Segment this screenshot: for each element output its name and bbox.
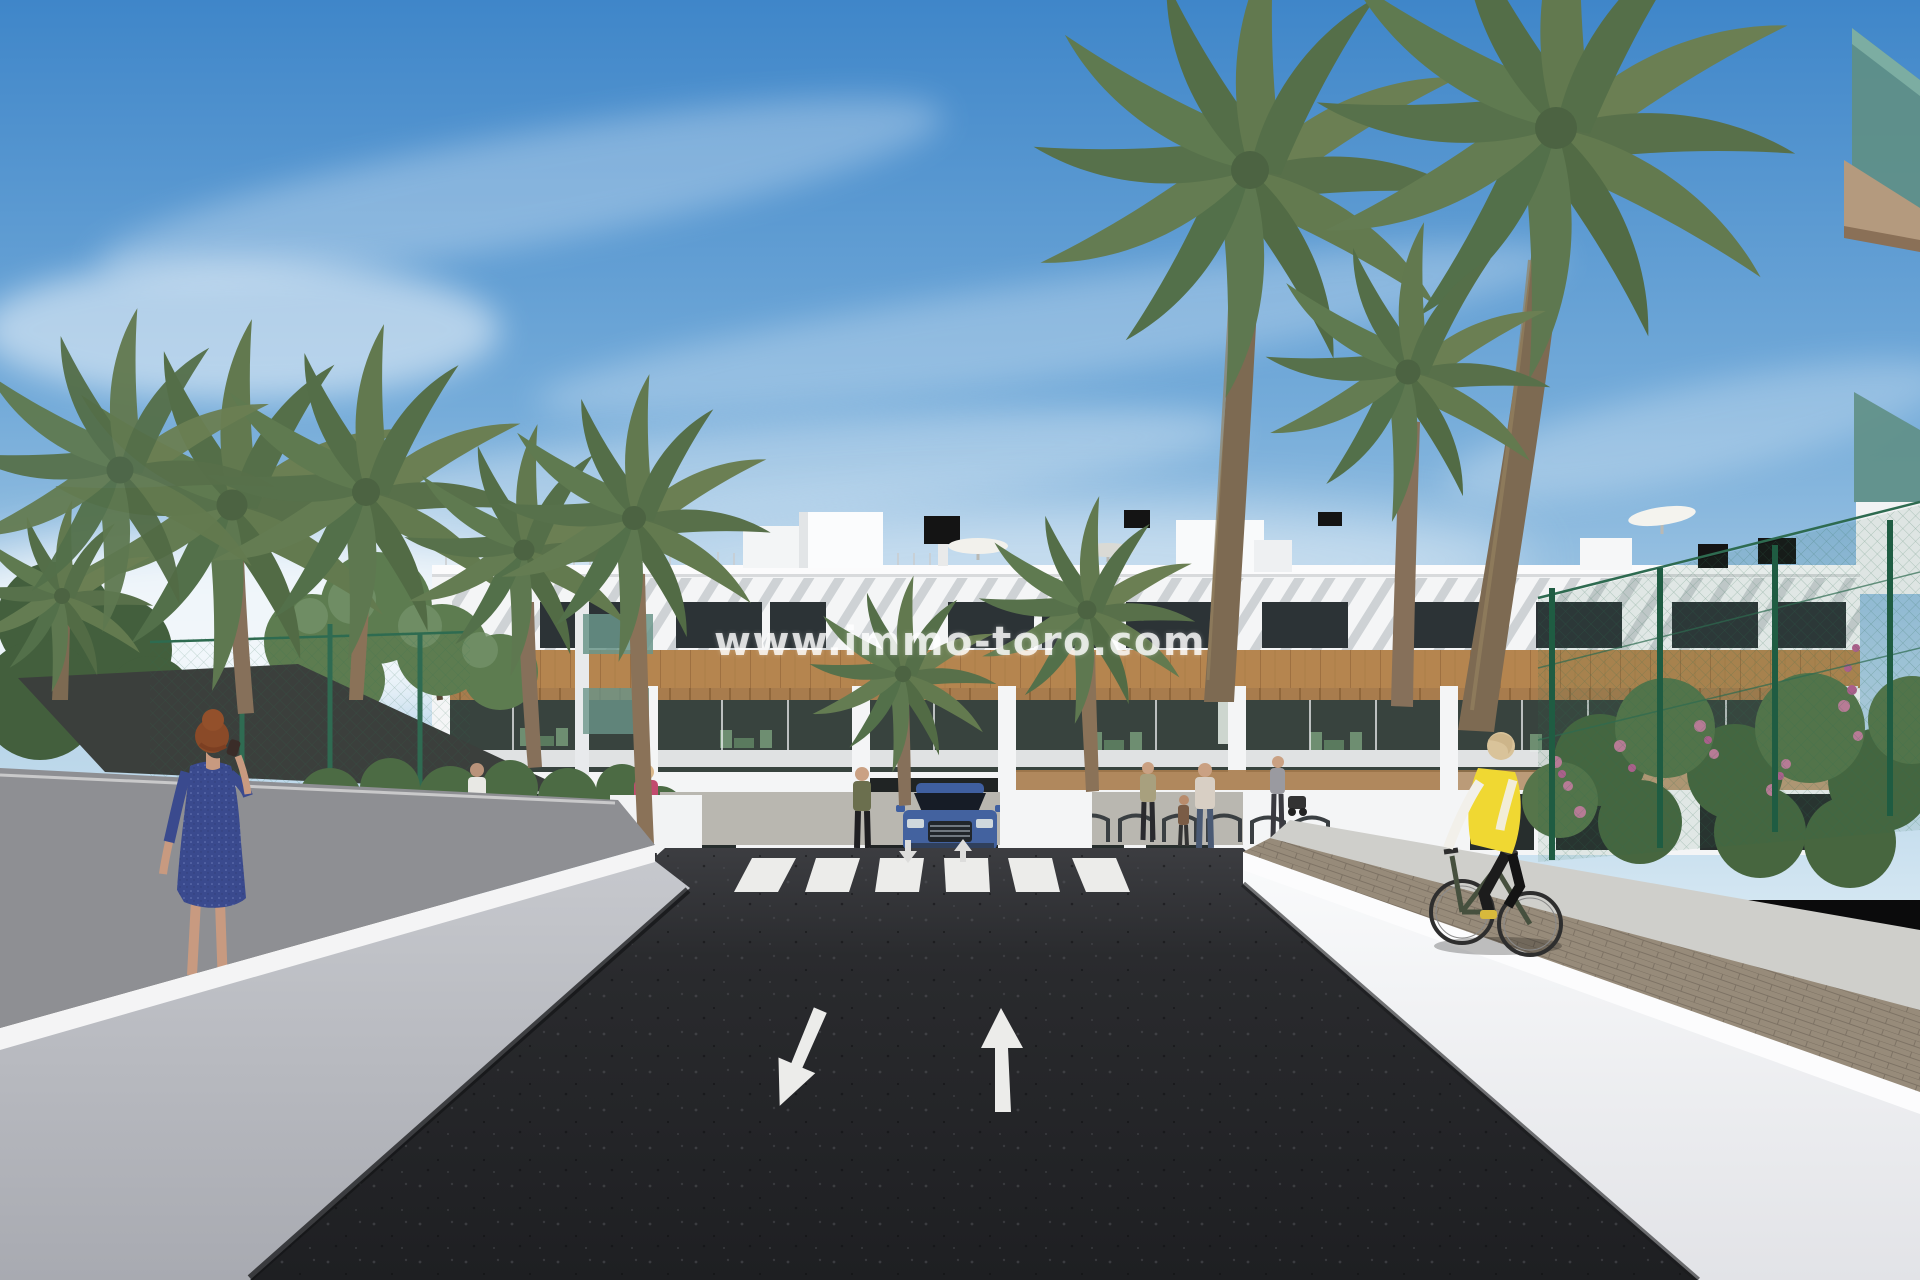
architectural-render: www.immo-toro.com: [0, 0, 1920, 1280]
render-scene: [0, 0, 1920, 1280]
balcony-person-silhouette: [1218, 700, 1228, 744]
